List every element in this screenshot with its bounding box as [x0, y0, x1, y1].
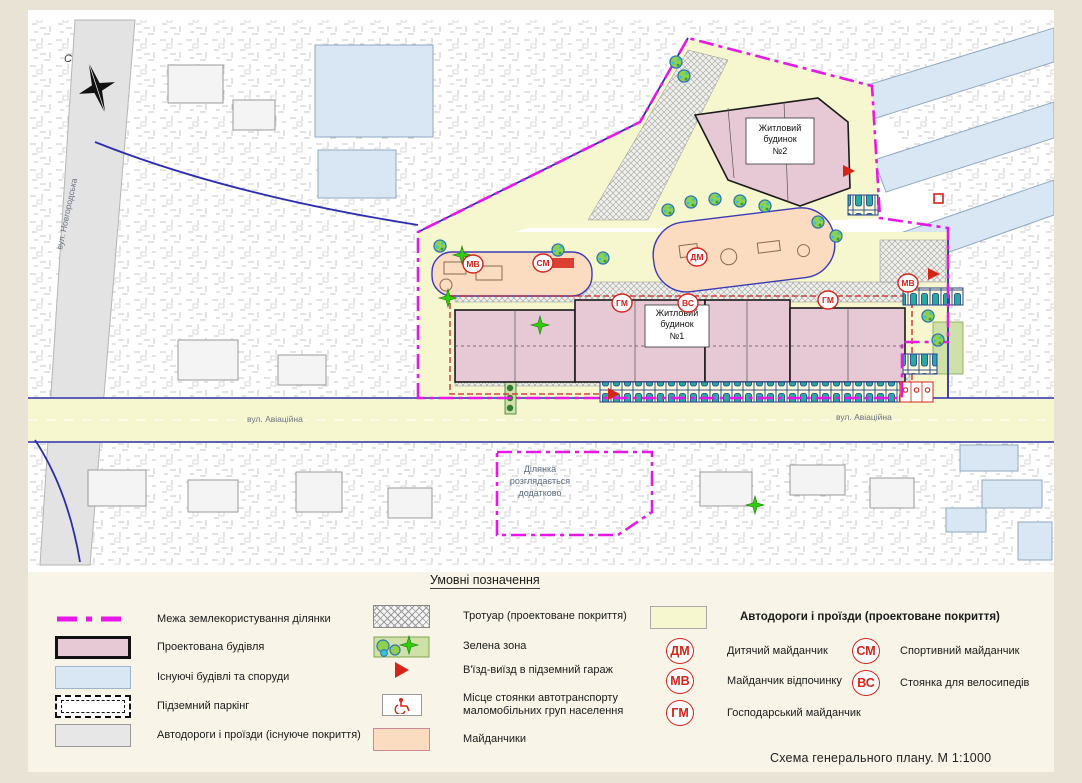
legend-label: Тротуар (проектоване покриття) — [463, 610, 627, 623]
parcel-note-line2: розглядається — [510, 476, 570, 486]
badge-mv-2: МВ — [901, 278, 914, 288]
green-zone-swatch — [373, 634, 430, 659]
legend-row-green-zone: Зелена зона — [373, 634, 526, 659]
drawing-caption: Схема генерального плану. М 1:1000 — [770, 751, 991, 765]
legend-row-underground-parking: Підземний паркінг — [55, 695, 249, 718]
site-plan-map: Житловий будинок №1 Житловий будинок №2 — [28, 10, 1054, 572]
street-label-aviatsiina-right: вул. Авіаційна — [836, 412, 892, 422]
legend-row-badge-hm: ГМ Господарський майданчик — [666, 700, 861, 726]
playgrounds-swatch — [373, 728, 430, 751]
legend-label: Спортивний майданчик — [900, 645, 1019, 658]
legend-row-roads-existing: Автодороги і проїзди (існуюче покриття) — [55, 724, 361, 747]
legend-label: Стоянка для велосипедів — [900, 677, 1029, 690]
legend-label: Існуючі будівлі та споруди — [157, 671, 289, 684]
underground-parking-swatch — [55, 695, 131, 718]
building1-label-line3: №1 — [670, 331, 685, 341]
legend-row-proposed-building: Проектована будівля — [55, 636, 264, 659]
building2-label-line1: Житловий — [759, 123, 801, 133]
badge-mv-icon: МВ — [666, 668, 694, 694]
parcel-note-line3: додатково — [519, 488, 562, 498]
legend-row-badge-mv: МВ Майданчик відпочинку — [666, 668, 842, 694]
legend-row-badge-dm: ДМ Дитячий майданчик — [666, 638, 828, 664]
north-label: С — [64, 53, 72, 65]
legend-row-playgrounds: Майданчики — [373, 728, 526, 751]
legend-title: Умовні позначення — [430, 573, 540, 589]
legend-label: Майданчик відпочинку — [727, 675, 842, 688]
legend-row-sidewalk: Тротуар (проектоване покриття) — [373, 605, 627, 628]
roads-existing-swatch — [55, 724, 131, 747]
legend-label: Автодороги і проїзди (проектоване покрит… — [740, 611, 1000, 624]
general-plan-sheet: Житловий будинок №1 Житловий будинок №2 — [0, 0, 1082, 783]
badge-dm: ДМ — [690, 252, 703, 262]
badge-hm-2: ГМ — [822, 295, 834, 305]
wheelchair-icon — [391, 696, 413, 714]
legend-label: Дитячий майданчик — [727, 645, 828, 658]
legend-row-roads-proposed: Автодороги і проїзди (проектоване покрит… — [650, 606, 1000, 629]
proposed-building-swatch — [55, 636, 131, 659]
legend-label: Підземний паркінг — [157, 700, 249, 713]
legend-row-disabled-parking: Місце стоянки автотранспорту маломобільн… — [373, 692, 623, 718]
legend-label: Майданчики — [463, 733, 526, 746]
badge-dm-icon: ДМ — [666, 638, 694, 664]
legend-label: Господарський майданчик — [727, 707, 861, 720]
building2-label-line2: будинок — [763, 134, 796, 144]
legend-label: Місце стоянки автотранспорту маломобільн… — [463, 692, 623, 718]
garage-entry-icon — [395, 662, 409, 678]
legend-label: Зелена зона — [463, 640, 526, 653]
badge-vs: ВС — [682, 298, 694, 308]
legend-label-line1: Місце стоянки автотранспорту — [463, 692, 618, 704]
legend-row-boundary: Межа землекористування ділянки — [55, 610, 331, 628]
badge-sm: СМ — [536, 258, 549, 268]
legend-row-existing-buildings: Існуючі будівлі та споруди — [55, 666, 289, 689]
building-1: Житловий будинок №1 — [450, 296, 912, 394]
badge-mv: МВ — [466, 259, 479, 269]
building1-label-line2: будинок — [660, 319, 693, 329]
parcel-note-line1: Ділянка — [524, 464, 556, 474]
legend-label-line2: маломобільних груп населення — [463, 705, 623, 717]
street-label-aviatsiina-left: вул. Авіаційна — [247, 414, 303, 424]
legend-label: Межа землекористування ділянки — [157, 613, 331, 626]
badge-hm-icon: ГМ — [666, 700, 694, 726]
legend-row-badge-vs: ВС Стоянка для велосипедів — [852, 670, 1029, 696]
existing-buildings-swatch — [55, 666, 131, 689]
boundary-line-swatch — [55, 610, 131, 628]
legend-row-badge-sm: СМ Спортивний майданчик — [852, 638, 1019, 664]
badge-vs-icon: ВС — [852, 670, 880, 696]
badge-hm: ГМ — [616, 298, 628, 308]
legend-label: В'їзд-виїзд в підземний гараж — [463, 664, 613, 677]
roads-proposed-swatch — [650, 606, 707, 629]
legend-label: Проектована будівля — [157, 641, 264, 654]
legend-row-garage-entry: В'їзд-виїзд в підземний гараж — [373, 662, 613, 678]
badge-sm-icon: СМ — [852, 638, 880, 664]
sidewalk-swatch — [373, 605, 430, 628]
disabled-parking-swatch — [382, 694, 422, 716]
legend-label: Автодороги і проїзди (існуюче покриття) — [157, 729, 361, 742]
building2-label-line3: №2 — [773, 146, 788, 156]
